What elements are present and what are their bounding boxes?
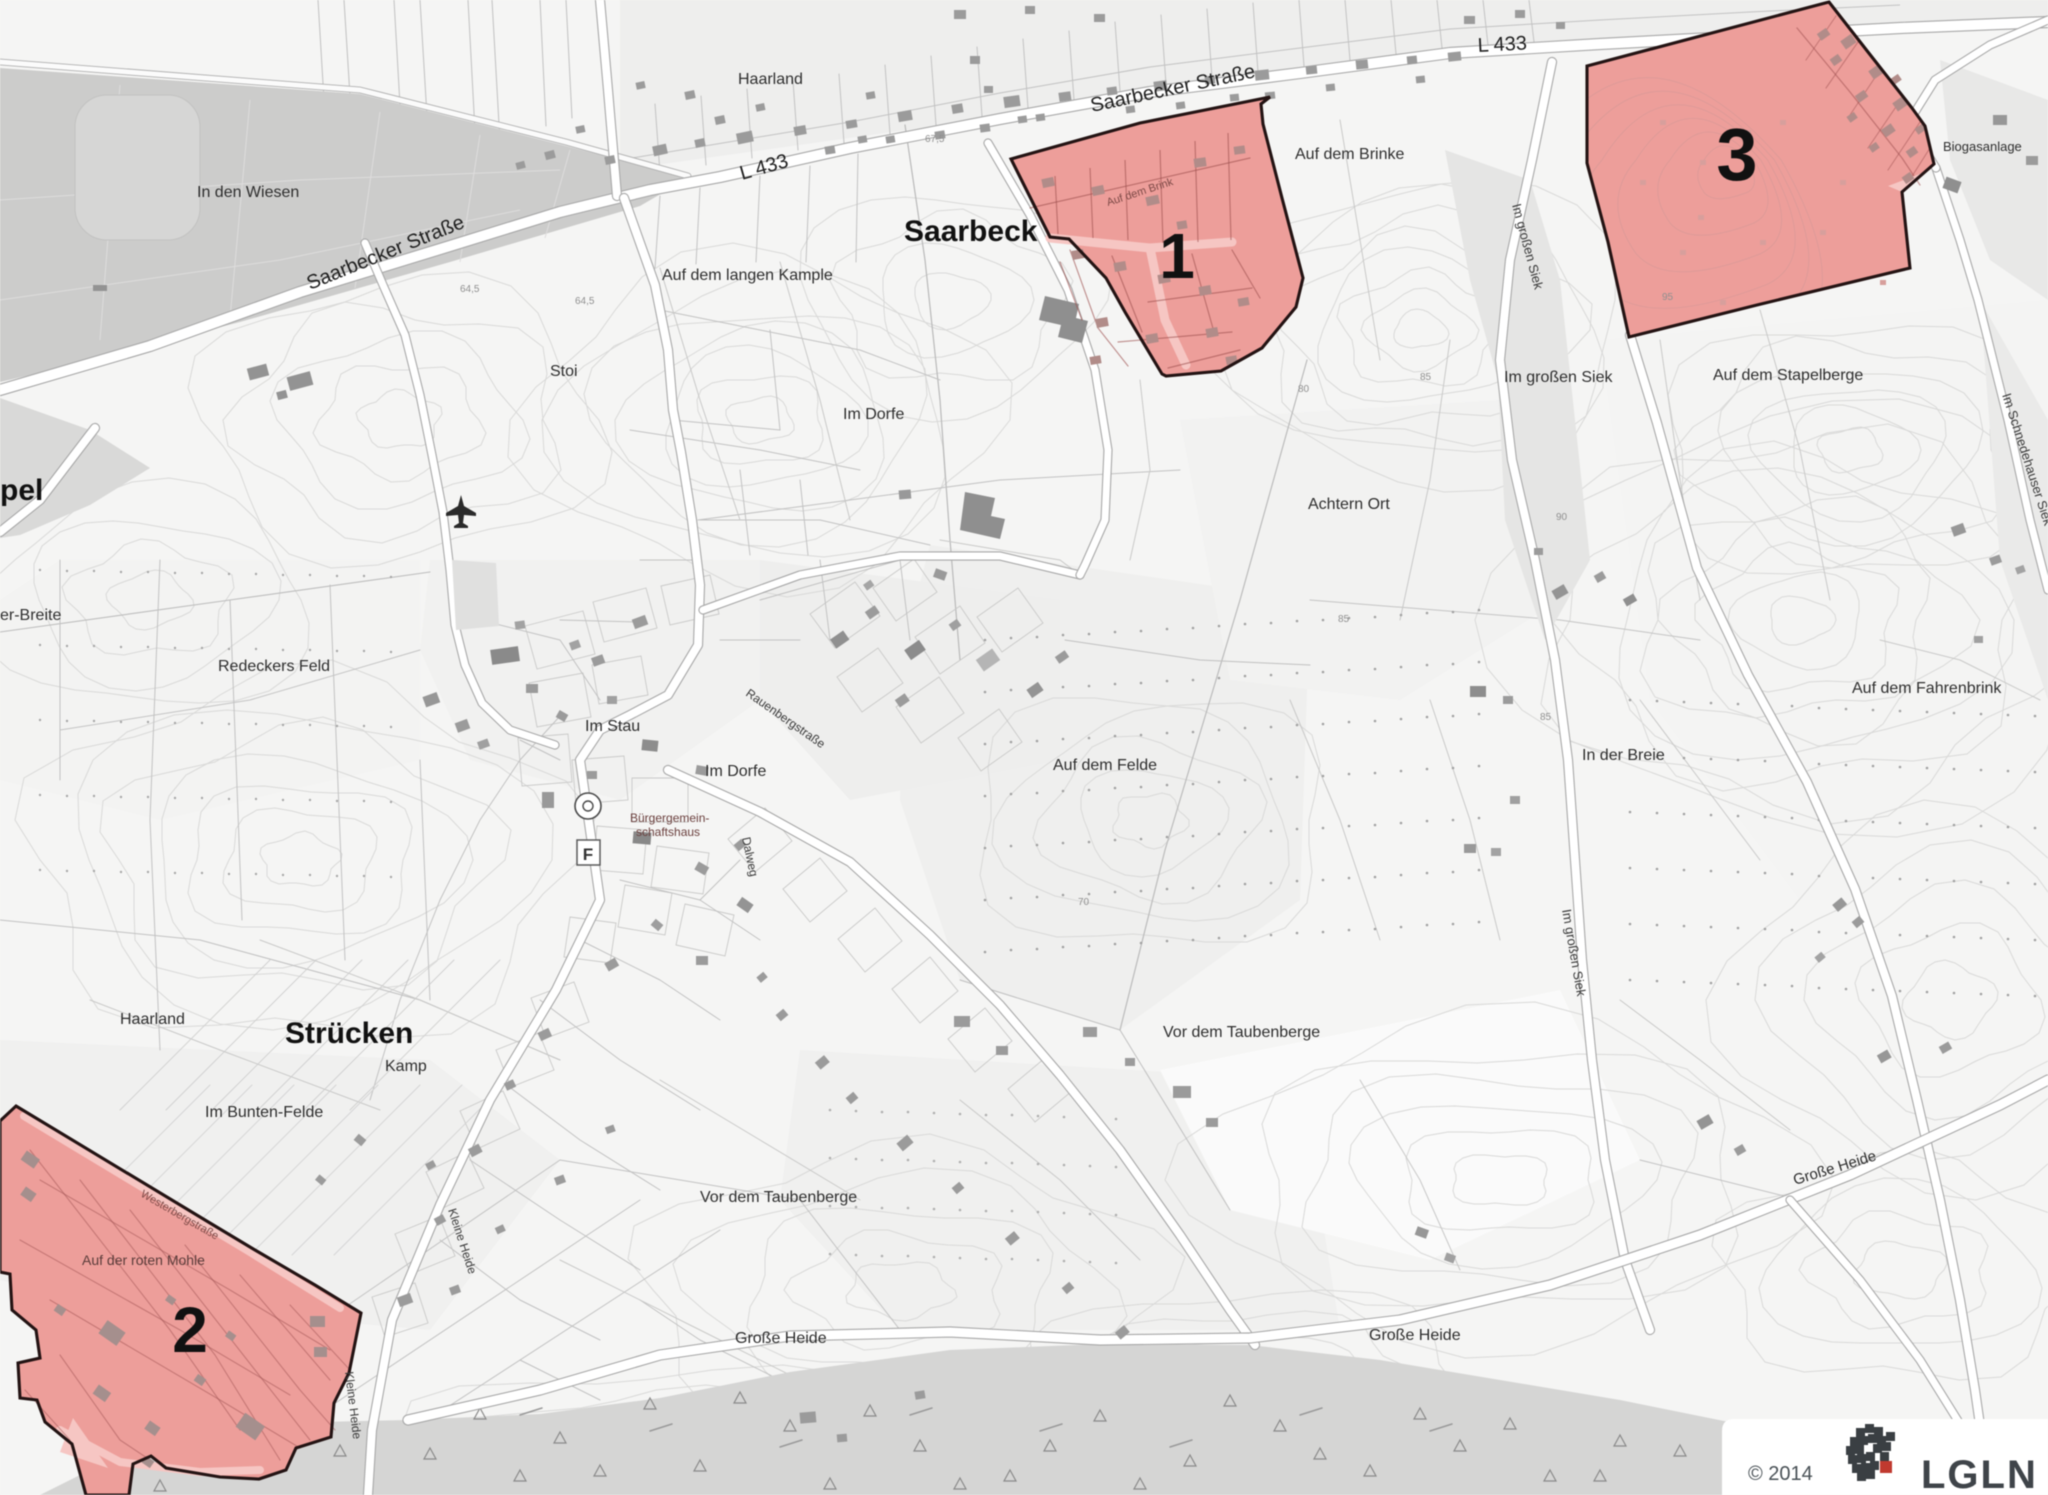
svg-text:F: F [583,845,593,864]
svg-text:70: 70 [1078,897,1090,908]
svg-text:Im Dorfe: Im Dorfe [843,406,904,423]
svg-text:Kamp: Kamp [385,1058,427,1075]
svg-text:pel: pel [0,474,43,507]
svg-text:1: 1 [1159,220,1195,292]
svg-text:© 2014: © 2014 [1748,1463,1813,1485]
svg-text:In den Wiesen: In den Wiesen [197,184,299,201]
svg-text:L 433: L 433 [1477,32,1527,57]
svg-text:2: 2 [172,1294,208,1366]
svg-text:Auf dem Brinke: Auf dem Brinke [1295,146,1404,163]
svg-text:Biogasanlage: Biogasanlage [1943,139,2022,154]
svg-text:Große Heide: Große Heide [1369,1327,1461,1344]
svg-text:Im Stau: Im Stau [585,718,640,735]
svg-text:85: 85 [1338,614,1350,625]
svg-text:Im Dorfe: Im Dorfe [705,763,766,780]
svg-text:Achtern Ort: Achtern Ort [1308,496,1390,513]
svg-text:Große Heide: Große Heide [735,1330,827,1347]
svg-text:schaftshaus: schaftshaus [636,825,700,839]
svg-text:90: 90 [1556,512,1568,523]
svg-text:Saarbeck: Saarbeck [904,215,1038,248]
svg-text:85: 85 [1420,372,1432,383]
svg-text:67,5: 67,5 [925,134,945,145]
svg-text:80: 80 [1298,384,1310,395]
svg-text:Auf dem Stapelberge: Auf dem Stapelberge [1713,367,1863,384]
svg-text:Im großen Siek: Im großen Siek [1504,369,1613,386]
svg-text:Auf dem Fahrenbrink: Auf dem Fahrenbrink [1852,680,2002,697]
svg-text:Haarland: Haarland [120,1011,185,1028]
svg-text:Vor dem Taubenberge: Vor dem Taubenberge [1163,1024,1320,1041]
svg-text:3: 3 [1716,113,1757,196]
svg-text:64,5: 64,5 [575,296,595,307]
svg-text:64,5: 64,5 [460,284,480,295]
svg-text:95: 95 [1662,292,1674,303]
svg-text:Strücken: Strücken [285,1017,413,1050]
svg-text:Auf dem Felde: Auf dem Felde [1053,757,1157,774]
svg-text:Im Bunten-Felde: Im Bunten-Felde [205,1104,323,1121]
svg-text:Stoi: Stoi [550,363,578,380]
svg-text:Auf der roten Mohle: Auf der roten Mohle [82,1252,205,1268]
svg-text:Haarland: Haarland [738,71,803,88]
svg-text:Redeckers Feld: Redeckers Feld [218,658,330,675]
svg-text:er-Breite: er-Breite [0,607,61,624]
svg-text:Auf dem langen Kample: Auf dem langen Kample [662,267,833,284]
svg-text:85: 85 [1540,712,1552,723]
svg-text:Vor dem Taubenberge: Vor dem Taubenberge [700,1189,857,1206]
svg-text:LGLN: LGLN [1921,1453,2038,1495]
svg-text:Bürgergemein-: Bürgergemein- [630,811,709,825]
svg-text:In der Breie: In der Breie [1582,747,1665,764]
